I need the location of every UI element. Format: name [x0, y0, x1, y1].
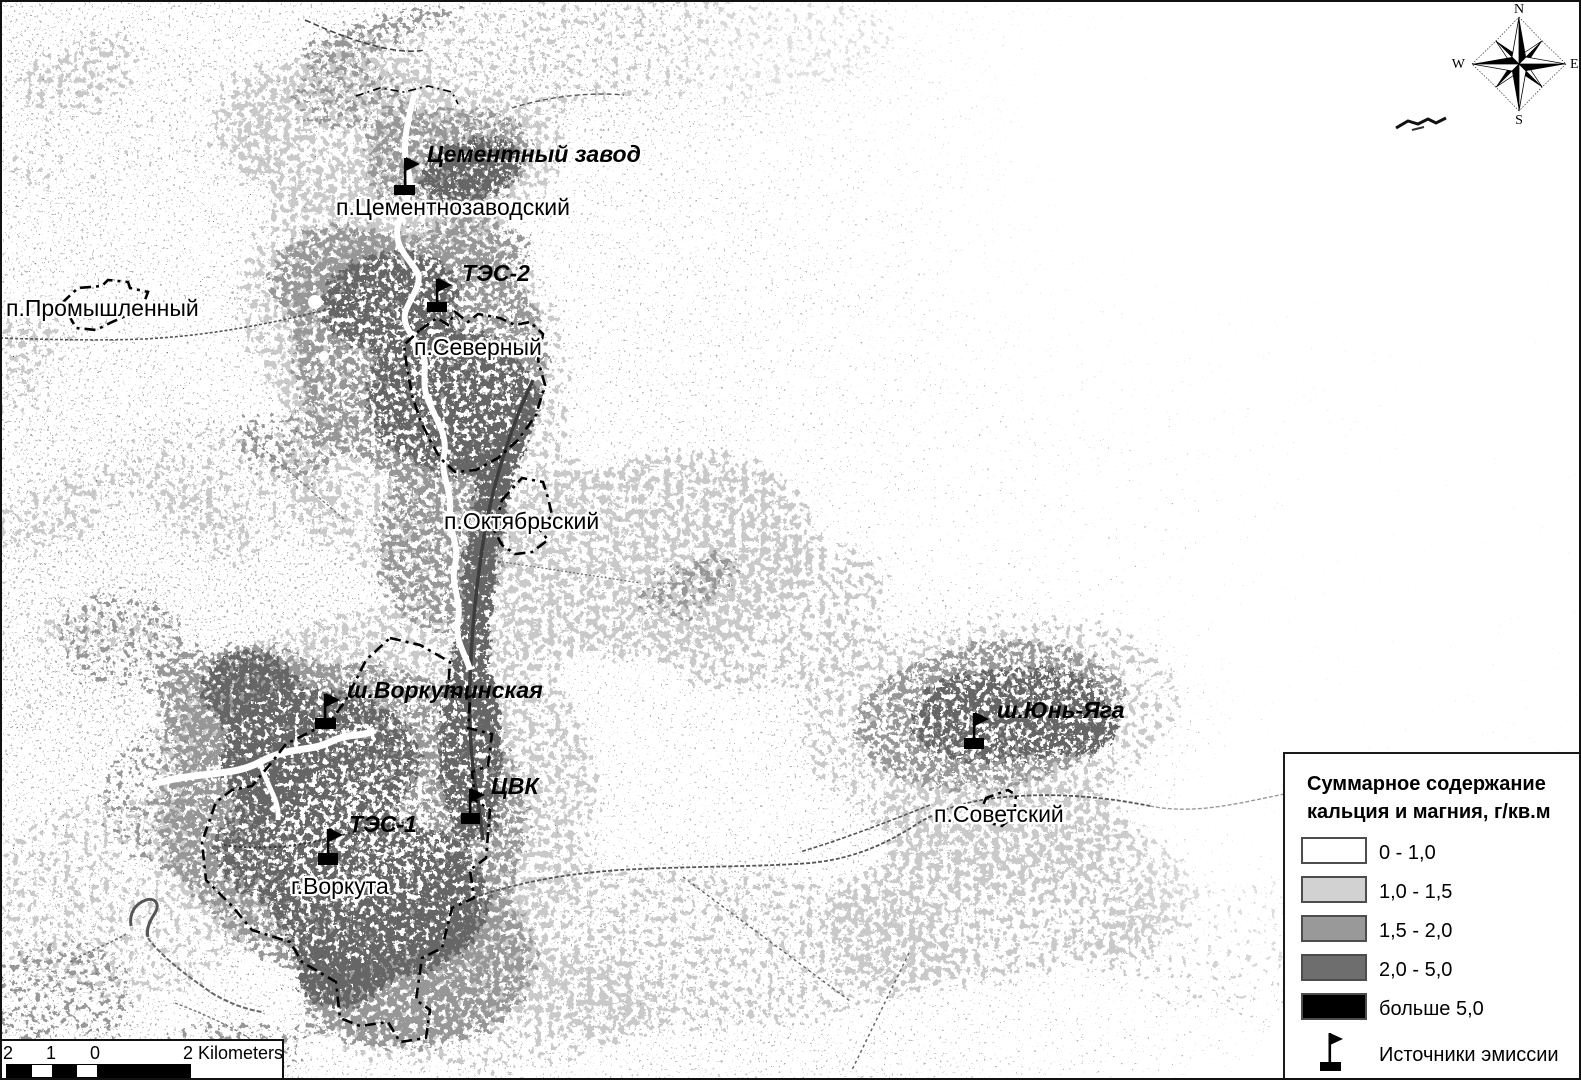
- svg-text:N: N: [1514, 2, 1524, 17]
- svg-text:S: S: [1515, 113, 1523, 128]
- svg-text:E: E: [1570, 57, 1579, 72]
- svg-text:W: W: [1452, 57, 1466, 72]
